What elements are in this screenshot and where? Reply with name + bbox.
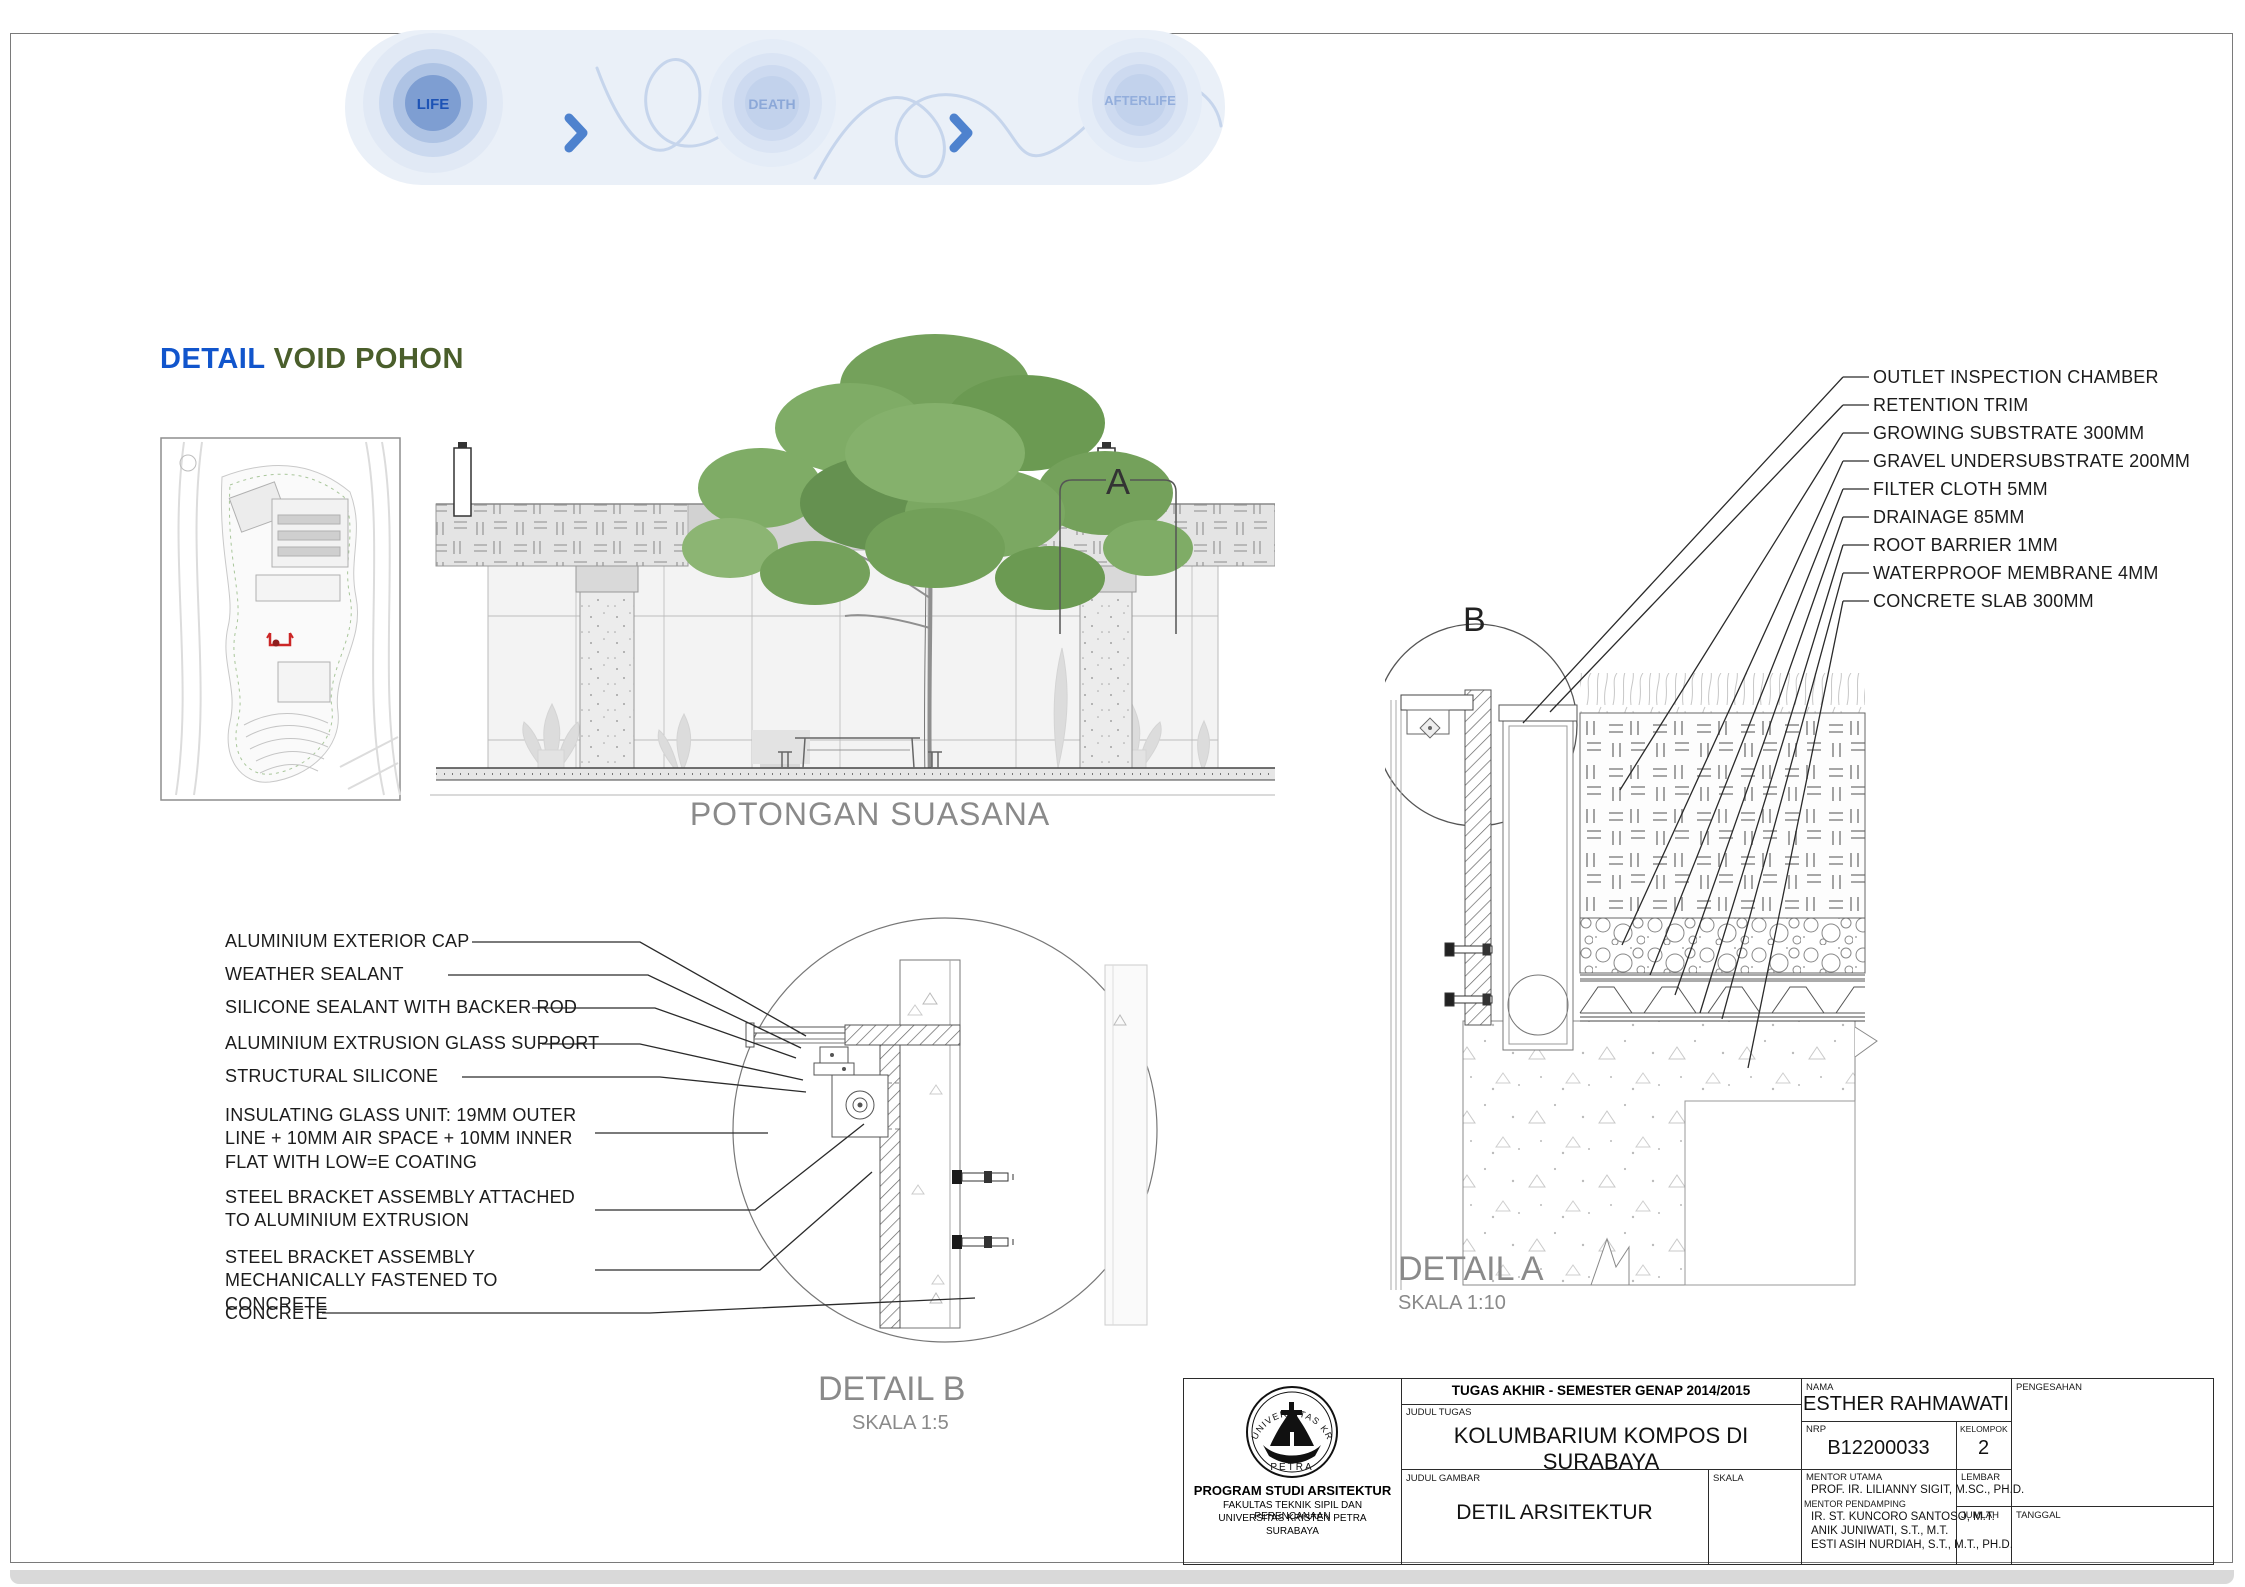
title-block-divider <box>1401 1404 1801 1405</box>
detail-b-callout: WEATHER SEALANT <box>225 963 404 986</box>
detail-b-title: DETAIL B <box>818 1370 965 1409</box>
mentor-pendamping-3: ESTI ASIH NURDIAH, S.T., M.T., PH.D. <box>1811 1539 2013 1551</box>
afterlife-label: AFTERLIFE <box>1104 93 1176 108</box>
title-block-divider <box>1801 1421 2011 1422</box>
nama-value: ESTHER RAHMAWATI <box>1801 1393 2011 1416</box>
detail-b-callout: STRUCTURAL SILICONE <box>225 1065 438 1088</box>
mentor-pendamping-label: MENTOR PENDAMPING <box>1804 1499 1906 1509</box>
mentor-utama-label: MENTOR UTAMA <box>1806 1472 1882 1483</box>
jumlah-label: JUMLAH <box>1961 1510 1999 1521</box>
aluminium-extrusion <box>814 1047 854 1075</box>
gravel-layer <box>1580 918 1865 973</box>
fastening-bolts <box>952 1170 1013 1249</box>
titleblock-header: TUGAS AKHIR - SEMESTER GENAP 2014/2015 <box>1401 1383 1801 1398</box>
detail-a-drawing: B <box>1385 585 1885 1295</box>
retention-trim <box>1499 705 1577 721</box>
detail-a-callout: DRAINAGE 85MM <box>1873 506 2025 529</box>
insulating-glass-unit <box>746 1023 845 1047</box>
detail-b-marker-label: B <box>1463 601 1486 639</box>
judul-tugas-label: JUDUL TUGAS <box>1406 1407 1471 1418</box>
outlet-inspection-chamber <box>1503 720 1573 1050</box>
detail-a-callout: FILTER CLOTH 5MM <box>1873 478 2048 501</box>
judul-tugas-value: KOLUMBARIUM KOMPOS DI SURABAYA <box>1401 1423 1801 1475</box>
detail-a-callout: GRAVEL UNDERSUBSTRATE 200MM <box>1873 450 2190 473</box>
title-block-divider <box>2011 1379 2012 1564</box>
grass-layer <box>1580 673 1865 713</box>
judul-gambar-label: JUDUL GAMBAR <box>1406 1473 1480 1484</box>
glazing-head-assembly <box>1401 695 1473 738</box>
detail-a-marker-label: A <box>1106 461 1130 502</box>
site-key-plan <box>160 437 401 801</box>
afterlife-node: AFTERLIFE <box>1078 38 1202 162</box>
page-title: DETAIL VOID POHON <box>160 343 464 376</box>
concrete-upstand-hatch <box>1465 690 1491 1025</box>
lembar-label: LEMBAR <box>1961 1472 2000 1483</box>
drawing-sheet: LIFE DEATH AFTERLIFE DETAIL VOID POHON <box>0 0 2245 1587</box>
seal-bottom-text: PETRA <box>1270 1462 1313 1473</box>
life-label: LIFE <box>417 96 450 113</box>
institution-kota: SURABAYA <box>1184 1526 1401 1537</box>
title-block-divider <box>1956 1506 2213 1507</box>
kelompok-label: KELOMPOK <box>1960 1424 2008 1434</box>
detail-b-callout: CONCRETE <box>225 1302 328 1325</box>
detail-a-callout: RETENTION TRIM <box>1873 394 2028 417</box>
seal-hull <box>1263 1445 1321 1464</box>
detail-a-title: DETAIL A <box>1398 1250 1544 1289</box>
detail-b-callout: INSULATING GLASS UNIT: 19MM OUTER LINE +… <box>225 1104 603 1174</box>
section-drawing: A <box>430 298 1275 805</box>
life-death-afterlife-banner: LIFE DEATH AFTERLIFE <box>345 30 1225 188</box>
hatch-strip-top <box>845 1025 960 1045</box>
detail-a-callout: GROWING SUBSTRATE 300MM <box>1873 422 2144 445</box>
detail-b-scale: SKALA 1:5 <box>852 1412 949 1435</box>
nrp-value: B12200033 <box>1801 1437 1956 1460</box>
life-node: LIFE <box>363 33 503 173</box>
ground-slab <box>430 768 1275 795</box>
break-line-right <box>1855 1027 1877 1057</box>
detail-b-callout: SILICONE SEALANT WITH BACKER ROD <box>225 996 577 1019</box>
detail-a-callout: ROOT BARRIER 1MM <box>1873 534 2058 557</box>
nrp-label: NRP <box>1806 1424 1826 1435</box>
detail-a-callout: OUTLET INSPECTION CHAMBER <box>1873 366 2159 389</box>
pengesahan-label: PENGESAHAN <box>2016 1382 2082 1393</box>
detail-b-callout: STEEL BRACKET ASSEMBLY ATTACHED TO ALUMI… <box>225 1186 585 1233</box>
seal-cross-bar <box>1281 1410 1302 1415</box>
mullion-cap-left <box>454 442 471 516</box>
title-block-divider <box>1708 1469 1709 1564</box>
institution-universitas: UNIVERSITAS KRISTEN PETRA <box>1184 1513 1401 1524</box>
detail-a-scale: SKALA 1:10 <box>1398 1292 1506 1315</box>
kelompok-value: 2 <box>1956 1437 2011 1460</box>
detail-a-callout: WATERPROOF MEMBRANE 4MM <box>1873 562 2159 585</box>
filter-cloth-layer <box>1580 975 1865 979</box>
detail-b-callout: ALUMINIUM EXTRUSION GLASS SUPPORT <box>225 1032 599 1055</box>
drainage-layer <box>1580 981 1865 1013</box>
title-block: UNIVERSITAS KRISTEN PETRA PROGRAM STUDI … <box>1183 1378 2214 1565</box>
university-seal-logo: UNIVERSITAS KRISTEN PETRA <box>1236 1384 1348 1484</box>
page-bottom-edge <box>10 1570 2234 1584</box>
detail-a-callout: CONCRETE SLAB 300MM <box>1873 590 2094 613</box>
section-caption: POTONGAN SUASANA <box>620 796 1120 833</box>
institution-program: PROGRAM STUDI ARSITEKTUR <box>1184 1483 1401 1498</box>
glazing-lines <box>1391 700 1401 1290</box>
far-wall-b <box>1105 965 1147 1325</box>
mentor-utama-value: PROF. IR. LILIANNY SIGIT, M.SC., PH.D. <box>1811 1484 2024 1496</box>
death-node: DEATH <box>708 39 836 167</box>
judul-gambar-value: DETIL ARSITEKTUR <box>1401 1501 1708 1525</box>
far-wall <box>1685 1101 1855 1285</box>
nama-label: NAMA <box>1806 1382 1833 1393</box>
membrane-layers <box>1580 1017 1865 1021</box>
skala-label: SKALA <box>1713 1473 1744 1484</box>
concrete-column-left <box>576 566 638 776</box>
death-label: DEATH <box>748 96 795 112</box>
mentor-pendamping-2: ANIK JUNIWATI, S.T., M.T. <box>1811 1525 1948 1537</box>
detail-b-callout: ALUMINIUM EXTERIOR CAP <box>225 930 469 953</box>
detail-b-drawing <box>600 855 1180 1375</box>
parapet-hatch-left <box>436 504 688 566</box>
growing-substrate-layer <box>1580 713 1865 918</box>
page-title-detail: DETAIL <box>160 343 265 375</box>
tanggal-label: TANGGAL <box>2016 1510 2061 1521</box>
